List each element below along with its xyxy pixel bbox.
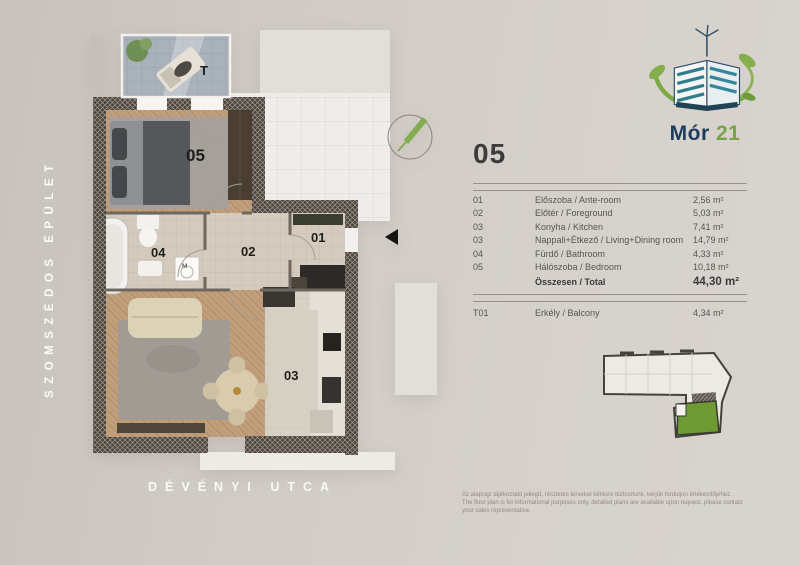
balcony xyxy=(122,35,230,97)
sink xyxy=(138,261,162,276)
table-row: 03 Nappali+Étkező / Living+Dining room 1… xyxy=(473,234,747,247)
toilet xyxy=(139,227,157,247)
chair xyxy=(203,383,220,400)
coffee-table xyxy=(146,345,200,373)
entry-cabinet-top xyxy=(293,214,343,225)
entrance-arrow-icon xyxy=(385,229,398,245)
floor-plan-drawing xyxy=(85,25,437,470)
disclaimer-en: The floor plan is for informational purp… xyxy=(462,499,752,515)
table-row: 05 Hálószoba / Bedroom 10,18 m² xyxy=(473,261,747,274)
key-plan xyxy=(592,340,742,460)
logo: Mór 21 xyxy=(640,24,770,146)
table-row: 01 Előszoba / Ante-room 2,56 m² xyxy=(473,194,747,207)
washer-label: M xyxy=(182,264,187,271)
chair xyxy=(229,357,246,374)
table-row: 04 Fürdő / Bathroom 4,33 m² xyxy=(473,248,747,261)
table-row: 02 Előtér / Foreground 5,03 m² xyxy=(473,207,747,220)
room-label-entry: 01 xyxy=(311,231,325,244)
exterior-area-right xyxy=(395,283,437,395)
unit-number: 05 xyxy=(473,140,747,168)
floor-plan: T 05 04 02 01 03 M xyxy=(85,25,437,470)
disclaimer: Az alaprajz tájékoztató jellegű, részlet… xyxy=(462,491,752,515)
balcony-row: T01 Erkély / Balcony 4,34 m² xyxy=(473,307,747,320)
exterior-area-bottom xyxy=(200,452,395,470)
total-row: Összesen / Total 44,30 m² xyxy=(473,275,747,290)
room-label-balcony: T xyxy=(200,64,208,77)
bed-blanket xyxy=(143,121,190,205)
pillow xyxy=(112,128,127,160)
oven xyxy=(323,333,341,351)
room-label-bathroom: 04 xyxy=(151,246,165,259)
unit-data-panel: 05 01 Előszoba / Ante-room 2,56 m² 02 El… xyxy=(473,140,747,321)
exterior-column xyxy=(90,35,103,88)
room-table: 01 Előszoba / Ante-room 2,56 m² 02 Előté… xyxy=(473,194,747,290)
toilet-tank xyxy=(137,215,159,229)
divider xyxy=(473,183,747,184)
chair xyxy=(229,409,246,426)
street-label: DÉVÉNYI UTCA xyxy=(148,480,337,494)
logo-building-icon xyxy=(646,24,764,116)
divider xyxy=(473,301,747,302)
room-label-bedroom: 05 xyxy=(186,147,205,164)
neighbor-building-label: SZOMSZÉDOS ÉPÜLET xyxy=(44,126,56,398)
room-label-living: 03 xyxy=(284,369,298,382)
unit-notch xyxy=(676,404,686,416)
table-row: 03 Konyha / Kitchen 7,41 m² xyxy=(473,221,747,234)
kitchen-tile-patch xyxy=(310,410,333,433)
divider xyxy=(473,294,747,295)
room-label-hall: 02 xyxy=(241,245,255,258)
disclaimer-hu: Az alaprajz tájékoztató jellegű, részlet… xyxy=(462,491,752,499)
plant xyxy=(140,38,152,50)
divider xyxy=(473,190,747,191)
north-compass-icon xyxy=(388,115,432,159)
fridge xyxy=(322,377,341,403)
floorplan-brochure-page: SZOMSZÉDOS ÉPÜLET DÉVÉNYI UTCA xyxy=(0,0,800,565)
table-decor xyxy=(233,387,241,395)
pillow xyxy=(112,166,127,198)
balcony-marks xyxy=(620,351,694,353)
tv-console xyxy=(117,423,205,433)
exterior-area-top xyxy=(260,30,390,94)
